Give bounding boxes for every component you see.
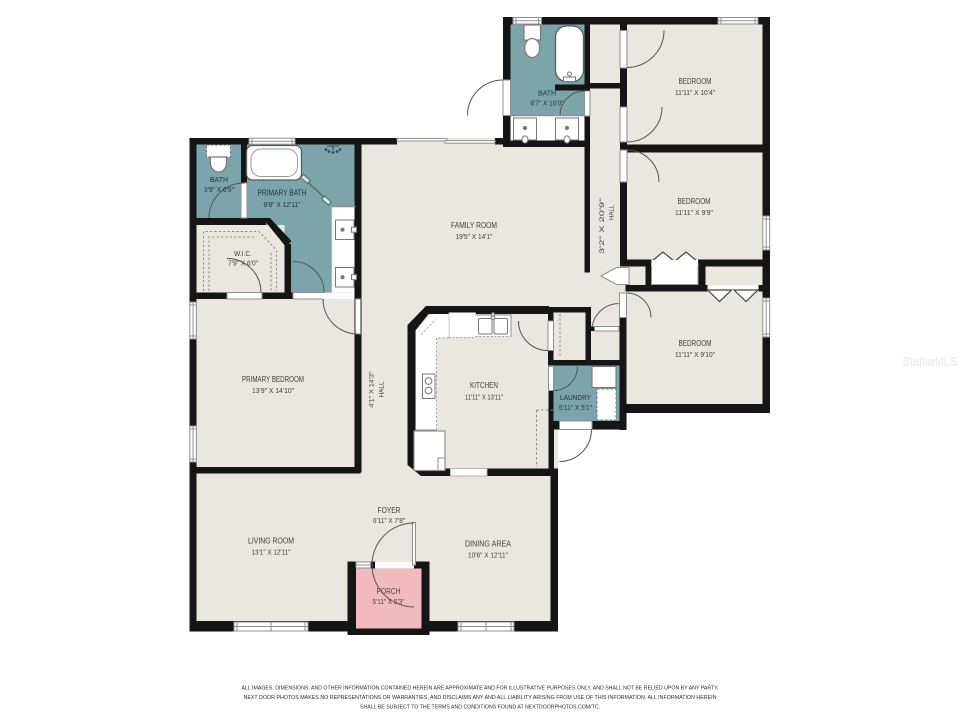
svg-text:PORCH: PORCH <box>377 587 401 596</box>
svg-text:9'8" X 12'11": 9'8" X 12'11" <box>264 200 301 209</box>
svg-text:SHALL BE SUBJECT TO THE TERMS: SHALL BE SUBJECT TO THE TERMS AND CONDIT… <box>360 705 600 711</box>
svg-text:5'11" X 5'3": 5'11" X 5'3" <box>373 597 405 606</box>
svg-text:StellarMLS: StellarMLS <box>903 355 958 369</box>
svg-text:11'11" X 13'11": 11'11" X 13'11" <box>465 393 503 402</box>
svg-text:FAMILY ROOM: FAMILY ROOM <box>451 221 497 230</box>
svg-text:HALL: HALL <box>609 205 616 220</box>
svg-text:PRIMARY BATH: PRIMARY BATH <box>258 189 307 198</box>
svg-text:BEDROOM: BEDROOM <box>679 77 712 86</box>
svg-text:LAUNDRY: LAUNDRY <box>560 393 591 402</box>
svg-text:FOYER: FOYER <box>378 506 401 515</box>
svg-text:10'6" X 12'11": 10'6" X 12'11" <box>468 551 508 560</box>
svg-text:BATH: BATH <box>210 175 228 184</box>
svg-text:13'1" X 12'11": 13'1" X 12'11" <box>252 548 291 557</box>
svg-text:W.I.C.: W.I.C. <box>234 249 252 258</box>
svg-text:BEDROOM: BEDROOM <box>679 339 712 348</box>
svg-text:4'1" X 14'3": 4'1" X 14'3" <box>369 372 376 408</box>
svg-text:7'9" X 6'0": 7'9" X 6'0" <box>228 259 258 268</box>
svg-text:PRIMARY BEDROOM: PRIMARY BEDROOM <box>242 375 304 384</box>
svg-text:11'11" X 10'4": 11'11" X 10'4" <box>675 88 715 97</box>
svg-text:LIVING ROOM: LIVING ROOM <box>248 537 294 546</box>
svg-text:BEDROOM: BEDROOM <box>678 197 711 206</box>
svg-text:6'7" X 10'0": 6'7" X 10'0" <box>531 99 564 108</box>
svg-text:BATH: BATH <box>538 89 556 98</box>
svg-text:3'2" X 20'9": 3'2" X 20'9" <box>599 198 606 254</box>
svg-text:DINING AREA: DINING AREA <box>465 540 511 549</box>
svg-text:KITCHEN: KITCHEN <box>470 381 498 390</box>
svg-text:HALL: HALL <box>379 381 386 397</box>
svg-text:11'11" X 9'10": 11'11" X 9'10" <box>675 350 715 359</box>
svg-text:13'9" X 14'10": 13'9" X 14'10" <box>252 386 294 395</box>
svg-text:11'11" X 9'9": 11'11" X 9'9" <box>675 208 713 217</box>
svg-text:NEXT DOOR PHOTOS MAKES NO REPR: NEXT DOOR PHOTOS MAKES NO REPRESENTATION… <box>244 695 717 701</box>
svg-text:6'11" X 7'8": 6'11" X 7'8" <box>373 516 405 525</box>
svg-text:ALL IMAGES, DIMENSIONS, AND OT: ALL IMAGES, DIMENSIONS, AND OTHER INFORM… <box>242 686 719 692</box>
svg-text:3'9" X 6'6": 3'9" X 6'6" <box>204 185 234 194</box>
svg-text:5'11" X 5'1": 5'11" X 5'1" <box>559 403 592 412</box>
svg-text:19'5" X 14'1": 19'5" X 14'1" <box>456 232 493 241</box>
